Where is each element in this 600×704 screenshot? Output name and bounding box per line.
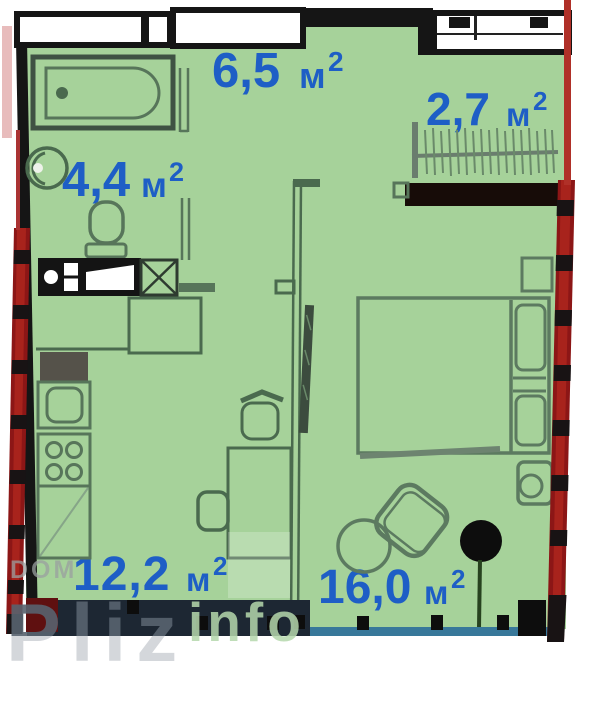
svg-text:12,2: 12,2: [73, 548, 170, 601]
svg-text:2: 2: [169, 157, 184, 187]
svg-text:DOM: DOM: [10, 556, 77, 584]
svg-text:м: м: [299, 55, 326, 96]
svg-text:2: 2: [213, 551, 227, 581]
svg-text:м: м: [141, 166, 167, 205]
svg-text:info: info: [188, 591, 305, 653]
svg-text:2: 2: [328, 46, 344, 77]
svg-text:2,7: 2,7: [426, 83, 490, 135]
svg-text:2: 2: [533, 86, 547, 116]
svg-text:м: м: [506, 96, 530, 133]
svg-text:2: 2: [451, 564, 465, 594]
svg-text:м: м: [424, 574, 448, 611]
svg-text:4,4: 4,4: [62, 153, 130, 207]
svg-text:16,0: 16,0: [318, 561, 411, 614]
svg-text:6,5: 6,5: [212, 44, 280, 98]
